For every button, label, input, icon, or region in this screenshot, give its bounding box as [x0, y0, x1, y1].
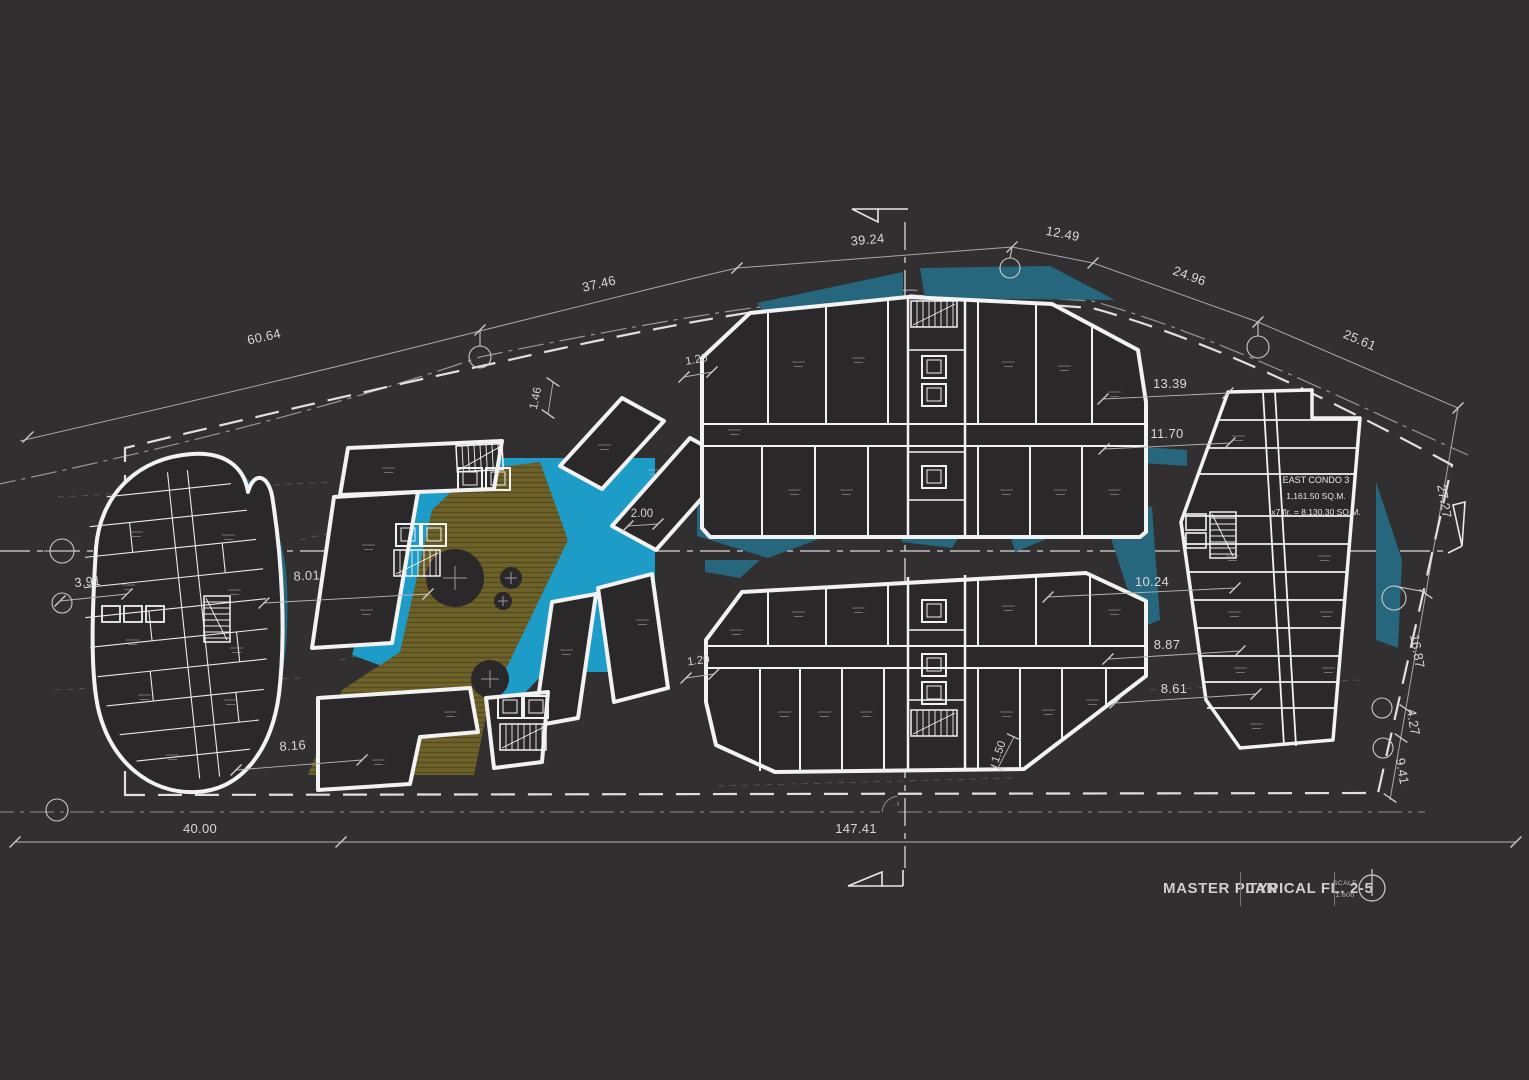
dim-east-13-39: 13.39: [1153, 376, 1187, 391]
east-condo-name: EAST CONDO 3: [1283, 475, 1350, 485]
east-condo-total-area: x7 flr. = 8,130.30 SQ.M.: [1271, 507, 1361, 517]
dim-left-3-91: 3.91: [74, 573, 102, 590]
dim-east-10-24: 10.24: [1135, 574, 1169, 589]
scale-label: SCALE: [1333, 880, 1357, 887]
scale-value: 1:600: [1335, 892, 1354, 899]
north-condo-block: [702, 297, 1146, 537]
dim-small-2-00: 2.00: [631, 508, 653, 520]
dim-east-8-87: 8.87: [1154, 637, 1181, 652]
master-plan-drawing: EAST CONDO 3 1,161.50 SQ.M. x7 flr. = 8,…: [0, 0, 1529, 1080]
master-plan-page: EAST CONDO 3 1,161.50 SQ.M. x7 flr. = 8,…: [0, 0, 1529, 1080]
dim-bottom-147-41: 147.41: [835, 821, 877, 836]
dim-left-8-16: 8.16: [279, 737, 306, 754]
dim-east-11-70: 11.70: [1150, 426, 1183, 441]
dim-top-39-24: 39.24: [850, 231, 885, 249]
dim-left-8-01: 8.01: [293, 567, 320, 583]
dim-east-8-61: 8.61: [1161, 681, 1188, 696]
east-condo-area: 1,161.50 SQ.M.: [1286, 491, 1346, 501]
dim-bottom-40-00: 40.00: [183, 821, 217, 836]
oval-building-outline: [93, 454, 283, 792]
